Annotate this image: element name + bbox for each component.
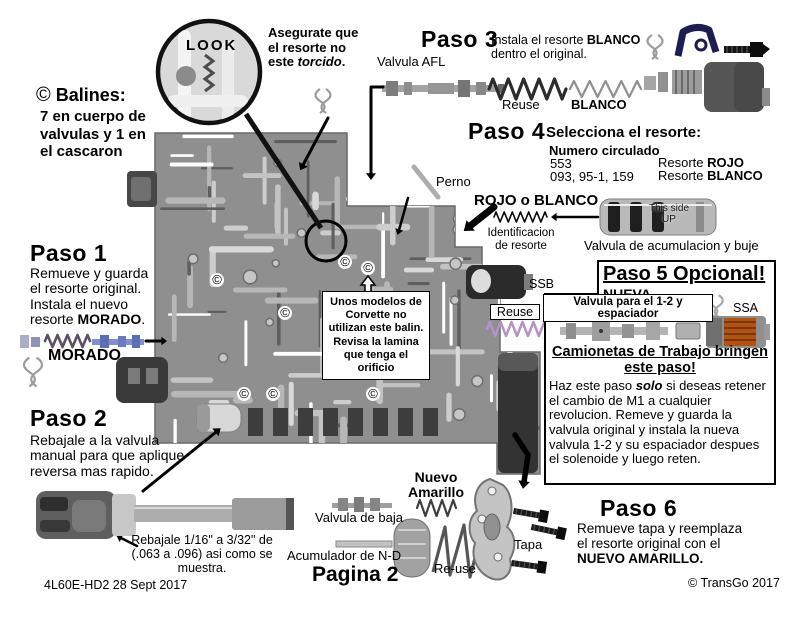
balin-marker: ©: [237, 387, 251, 401]
paso2-body: Rebajale a la valvula manual para que ap…: [30, 433, 184, 479]
spring-id-label: Identificacion de resorte: [482, 227, 560, 253]
acumulador-nd-label: Acumulador de N-D: [287, 549, 401, 564]
instruction-sheet: LOOK Asegurate que el resorte no este to…: [0, 0, 800, 619]
reuse-mid-label: Reuse: [490, 304, 540, 320]
corvette-note-box: Unos modelos de Corvette no utilizan est…: [322, 291, 430, 380]
paso4-row2-num: 093, 95-1, 159: [550, 170, 634, 185]
nuevo-amarillo-label: Nuevo Amarillo: [405, 470, 467, 499]
doc-id-footer: 4L60E-HD2 28 Sept 2017: [44, 578, 187, 592]
row2-bold: BLANCO: [707, 168, 763, 183]
paso1-bold: MORADO: [77, 311, 141, 327]
balin-marker: ©: [210, 273, 224, 287]
paso1-title: Paso 1: [30, 241, 107, 267]
paso6-title: Paso 6: [600, 496, 677, 522]
manual-valve-note: Rebajale 1/16" a 3/32" de (.063 a .096) …: [128, 533, 276, 575]
balin-marker: ©: [278, 306, 292, 320]
balines-title: © Balines:: [36, 84, 126, 106]
balin-marker: ©: [266, 387, 280, 401]
blanco-spring-label: BLANCO: [571, 98, 627, 113]
reuse-bottom-label: Re-use: [434, 562, 476, 577]
paso5-bold: solo: [636, 378, 663, 393]
paso6-bold: NUEVO AMARILLO.: [577, 551, 703, 566]
camionetas-subtitle: Camionetas de Trabajo bringen este paso!: [548, 344, 772, 376]
paso2-title: Paso 2: [30, 406, 107, 432]
acumulador-valve-label: Valvula de acumulacion y buje: [584, 239, 759, 254]
reuse-spring-label: Reuse: [502, 98, 540, 113]
afl-valve-label: Valvula AFL: [377, 55, 445, 70]
paso3-body: Instala el resorte BLANCO dentro el orig…: [491, 33, 640, 61]
look-text: LOOK: [186, 37, 237, 54]
balin-marker: ©: [361, 261, 375, 275]
paso1-post: .: [141, 311, 145, 327]
paso3-post: dentro el original.: [491, 47, 587, 61]
balines-body: 7 en cuerpo de valvulas y 1 en el cascar…: [40, 108, 146, 161]
ssa-label: SSA: [733, 301, 758, 315]
paso6-pre: Remueve tapa y reemplaza el resorte orig…: [577, 521, 742, 551]
copyright-ball-icon: ©: [36, 84, 51, 106]
paso3-bold: BLANCO: [587, 33, 640, 47]
paso4-title: Paso 4: [468, 119, 545, 145]
paso4-row2-spring: Resorte BLANCO: [658, 169, 763, 184]
paso3-title: Paso 3: [421, 27, 498, 53]
warning-post: .: [342, 54, 346, 69]
copyright-footer: © TransGo 2017: [688, 576, 780, 590]
ssb-label: SSB: [529, 277, 554, 291]
row2-pre: Resorte: [658, 168, 707, 183]
this-side-up-label: This side UP: [642, 203, 696, 225]
paso5-pre: Haz este paso: [549, 378, 636, 393]
paso6-body: Remueve tapa y reemplaza el resorte orig…: [577, 522, 742, 567]
spring-warning-note: Asegurate que el resorte no este torcido…: [268, 26, 358, 70]
paso5-title: Paso 5 Opcional!: [603, 263, 765, 285]
balin-marker: ©: [366, 387, 380, 401]
paso3-pre: Instala el resorte: [491, 33, 587, 47]
paso1-body: Remueve y guarda el resorte original. In…: [30, 266, 148, 327]
perno-label: Perno: [436, 175, 471, 190]
valve-1-2-label: Valvula para el 1-2 y espaciador: [543, 294, 713, 322]
paso5-body: Haz este paso solo si deseas retener el …: [549, 379, 773, 467]
rojo-blanco-label: ROJO o BLANCO: [474, 193, 598, 210]
balines-title-text: Balines:: [56, 85, 126, 105]
look-label: LOOK: [186, 38, 237, 55]
paso4-subtitle: Selecciona el resorte:: [546, 125, 701, 142]
morado-spring-label: MORADO: [48, 347, 121, 365]
warning-italic: torcido: [298, 54, 342, 69]
pagina-label: Pagina 2: [312, 563, 398, 587]
tapa-label: Tapa: [514, 538, 542, 553]
valvula-baja-label: Valvula de baja: [315, 511, 403, 526]
balin-marker: ©: [338, 255, 352, 269]
